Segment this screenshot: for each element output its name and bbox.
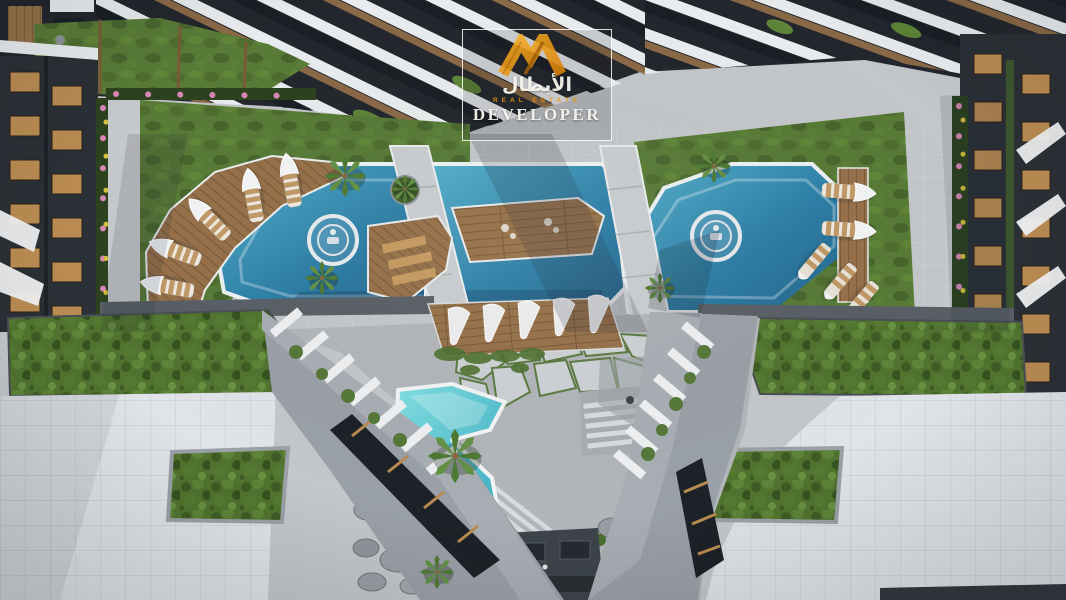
aerial-render-image: الأبطال REAL ESTATE DEVELOPER [0,0,1066,600]
brand-tagline: REAL ESTATE [493,97,581,104]
watermark-frame: الأبطال REAL ESTATE DEVELOPER [462,29,612,141]
abtal-monogram-icon [495,34,579,78]
brand-name-arabic: الأبطال [502,75,572,95]
brand-name: DEVELOPER [473,105,601,125]
